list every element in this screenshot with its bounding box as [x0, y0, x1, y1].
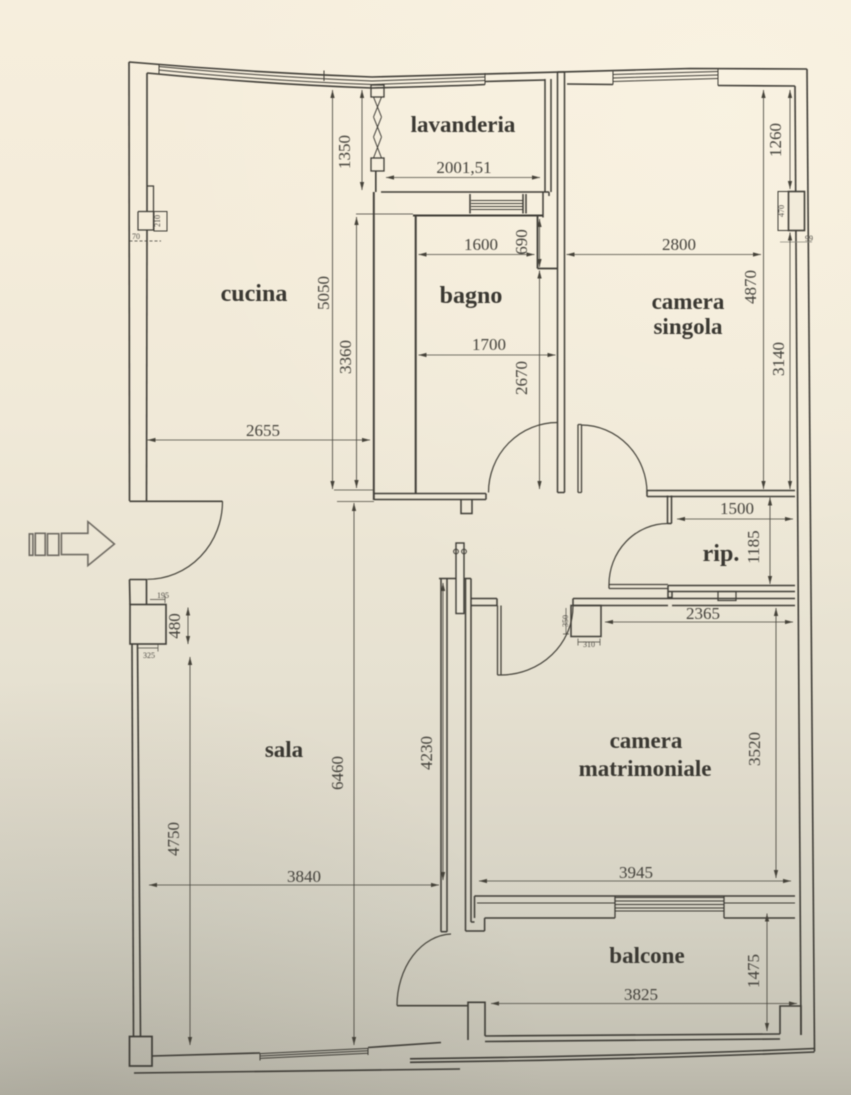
svg-text:1600: 1600 [464, 235, 498, 254]
svg-text:camera: camera [652, 289, 725, 314]
svg-text:99: 99 [805, 234, 813, 243]
svg-text:lavanderia: lavanderia [411, 112, 516, 137]
svg-text:3520: 3520 [745, 732, 764, 766]
svg-text:195: 195 [157, 591, 169, 600]
svg-text:3140: 3140 [769, 342, 788, 376]
svg-text:singola: singola [653, 314, 723, 339]
svg-text:5050: 5050 [314, 276, 333, 310]
svg-text:sala: sala [265, 737, 304, 762]
svg-text:matrimoniale: matrimoniale [579, 756, 712, 781]
svg-text:1500: 1500 [720, 499, 754, 518]
svg-text:2365: 2365 [686, 604, 720, 623]
svg-text:2655: 2655 [246, 421, 280, 440]
svg-text:rip.: rip. [703, 541, 740, 567]
svg-text:2800: 2800 [662, 235, 696, 254]
svg-text:4750: 4750 [164, 822, 183, 856]
svg-text:3360: 3360 [336, 340, 355, 374]
svg-text:690: 690 [512, 229, 531, 255]
svg-text:70: 70 [132, 232, 140, 241]
svg-text:camera: camera [610, 728, 683, 753]
svg-text:1185: 1185 [744, 530, 763, 563]
svg-text:1700: 1700 [472, 335, 506, 354]
svg-text:6460: 6460 [328, 756, 347, 790]
svg-text:470: 470 [777, 205, 786, 217]
svg-text:balcone: balcone [609, 943, 684, 968]
svg-text:480: 480 [165, 613, 184, 639]
svg-text:350: 350 [561, 615, 570, 627]
svg-text:cucina: cucina [221, 281, 288, 307]
svg-text:3840: 3840 [287, 867, 321, 886]
svg-text:2001,51: 2001,51 [436, 158, 491, 177]
svg-text:210: 210 [153, 215, 162, 227]
svg-text:1475: 1475 [744, 954, 763, 988]
svg-text:bagno: bagno [440, 283, 503, 309]
svg-text:4230: 4230 [417, 736, 436, 770]
svg-text:310: 310 [583, 640, 595, 649]
svg-text:325: 325 [143, 651, 155, 660]
svg-text:3945: 3945 [619, 863, 653, 882]
svg-text:1350: 1350 [335, 135, 354, 169]
svg-text:4870: 4870 [741, 270, 760, 304]
svg-text:3825: 3825 [624, 985, 658, 1004]
svg-text:1260: 1260 [766, 123, 785, 157]
svg-text:2670: 2670 [512, 361, 531, 395]
